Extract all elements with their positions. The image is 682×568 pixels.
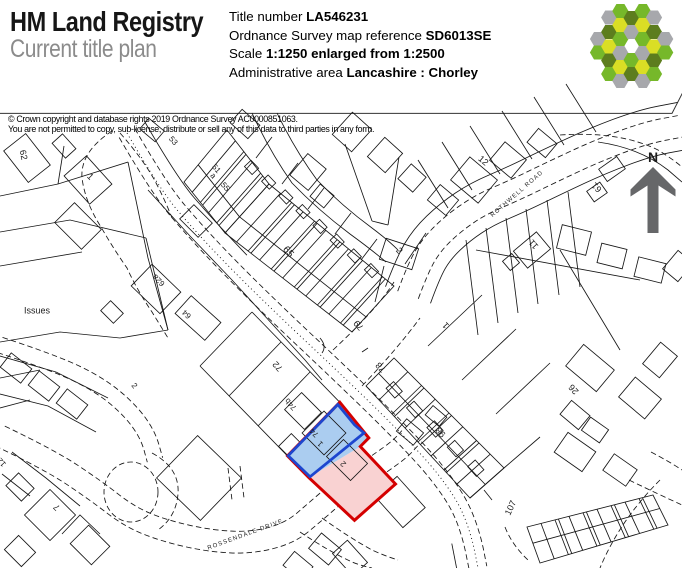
svg-text:2: 2 xyxy=(129,381,139,391)
svg-text:61: 61 xyxy=(589,180,603,194)
svg-text:7: 7 xyxy=(51,502,62,513)
svg-text:12: 12 xyxy=(0,456,8,469)
svg-text:ROTHWELL ROAD: ROTHWELL ROAD xyxy=(490,170,545,219)
svg-text:ROSSENDALE DRIVE: ROSSENDALE DRIVE xyxy=(207,519,284,552)
svg-text:26: 26 xyxy=(566,382,580,396)
svg-text:64: 64 xyxy=(180,308,193,321)
svg-text:72: 72 xyxy=(270,359,284,373)
svg-text:1: 1 xyxy=(440,320,451,330)
svg-text:65: 65 xyxy=(280,244,296,260)
svg-text:55: 55 xyxy=(219,180,232,193)
svg-text:Issues: Issues xyxy=(24,305,51,315)
svg-text:53: 53 xyxy=(167,134,180,147)
svg-text:11: 11 xyxy=(527,238,541,252)
svg-text:N: N xyxy=(648,149,658,165)
svg-text:78: 78 xyxy=(373,360,387,374)
svg-text:62: 62 xyxy=(18,149,30,161)
svg-text:107: 107 xyxy=(503,499,518,517)
svg-text:1: 1 xyxy=(85,171,96,182)
